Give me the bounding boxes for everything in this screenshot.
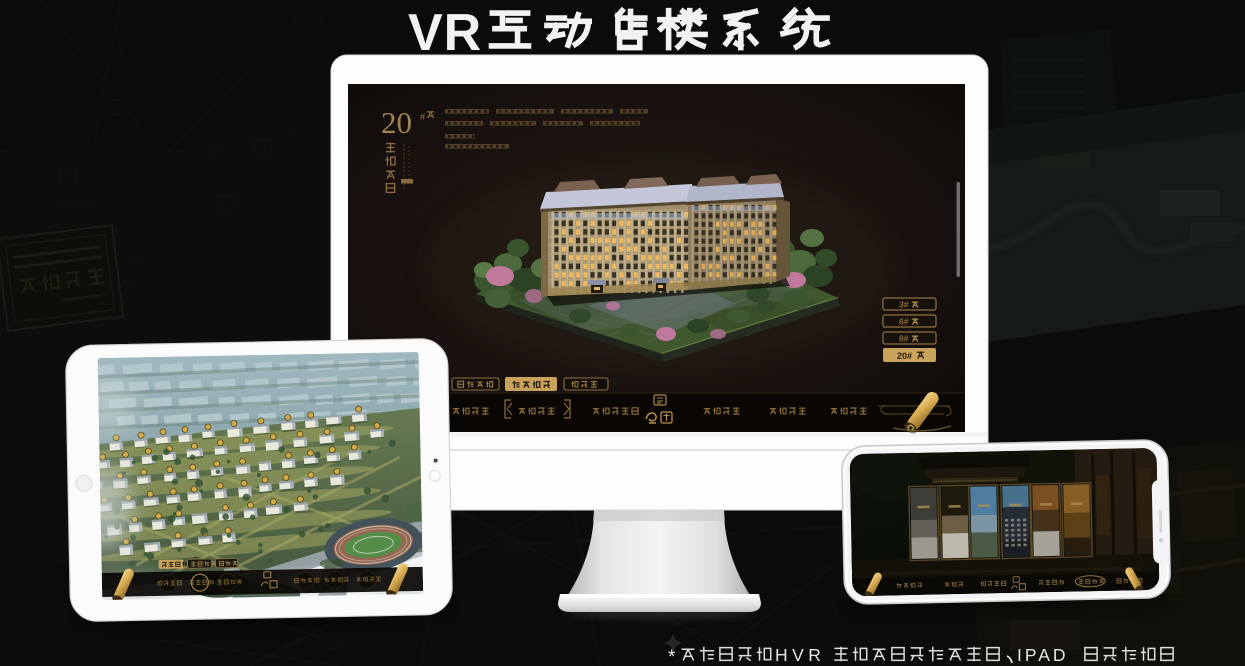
svg-text:8#: 8#: [899, 334, 909, 344]
svg-text:3#: 3#: [899, 300, 909, 310]
svg-text:HVR: HVR: [775, 645, 825, 665]
svg-text:*: *: [668, 647, 676, 666]
svg-text:6#: 6#: [899, 317, 909, 327]
svg-text:IPAD: IPAD: [1017, 645, 1069, 665]
svg-text:20: 20: [381, 105, 412, 140]
svg-text:VR: VR: [408, 4, 482, 62]
svg-text:#: #: [420, 112, 425, 122]
svg-text:20#: 20#: [897, 351, 912, 361]
